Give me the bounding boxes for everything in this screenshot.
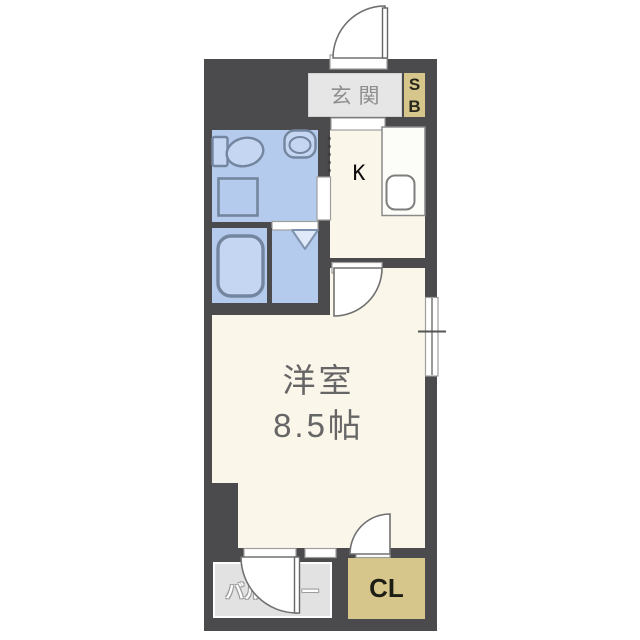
kitchen-label: K (344, 158, 374, 188)
entrance-door-leaf (383, 8, 388, 58)
balcony-window-opening (305, 549, 336, 558)
toilet-tank-icon (213, 137, 228, 166)
balcony-door-swing-icon (241, 557, 297, 613)
washer-pan-icon (219, 179, 258, 216)
bathtub-icon (218, 236, 263, 296)
bath-door-opening (272, 222, 318, 231)
room-door-swing-icon (334, 268, 382, 316)
entrance-door-swing-icon (333, 6, 385, 58)
main-room-size: 8.5帖 (212, 403, 425, 448)
bath-divider-wall (267, 228, 272, 303)
folding-door-icon (292, 230, 318, 249)
entrance-kitchen-opening (331, 118, 385, 130)
balcony-door-leaf (295, 557, 300, 613)
washroom-door-opening (317, 177, 331, 220)
toilet-icon (224, 134, 267, 170)
main-room-label: 洋室 8.5帖 (212, 358, 425, 448)
floorplan-canvas: 玄関 S B バルコニー CL (0, 0, 640, 640)
balcony-door-opening (244, 549, 296, 558)
kitchen-sink-icon (387, 176, 415, 210)
closet-door-swing-icon (350, 514, 390, 554)
main-room-name: 洋室 (212, 358, 425, 403)
fixtures-overlay (0, 0, 640, 640)
